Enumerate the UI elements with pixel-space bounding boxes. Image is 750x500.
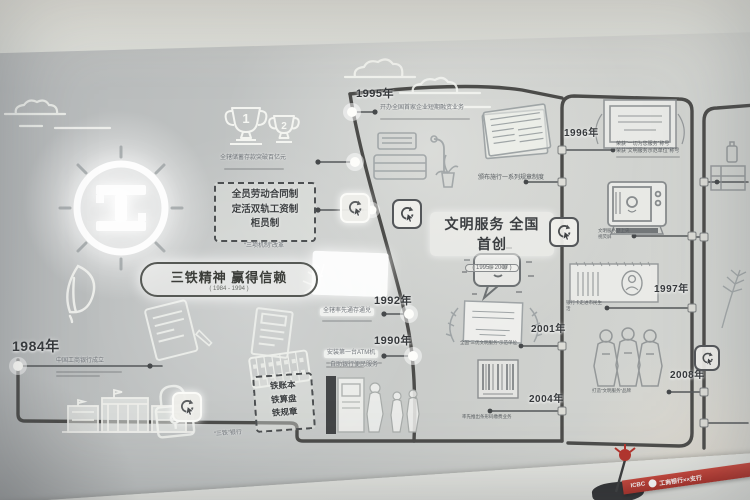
trophy-caption: 全辖储蓄存款突破百亿元 bbox=[220, 155, 314, 163]
atm-scene-icon bbox=[320, 370, 425, 440]
touch-button[interactable] bbox=[172, 392, 202, 422]
santie-line-3: 铁规章 bbox=[256, 404, 313, 421]
touch-button[interactable] bbox=[340, 193, 370, 223]
year-1997: 1997年 bbox=[654, 284, 689, 297]
event-2001: 全国“三优文明服务”示范单位 bbox=[460, 340, 518, 346]
mechanisms-box: 全员劳动合同制 定活双轨工资制 柜员制 bbox=[214, 182, 316, 242]
cloud-icon bbox=[0, 96, 175, 141]
mechanisms-line-3: 柜员制 bbox=[216, 217, 314, 232]
event-2008: 打造“文明服务”品牌 bbox=[592, 388, 668, 394]
event-1997: 银行卡走进市民生活 bbox=[566, 300, 606, 311]
year-2008: 2008年 bbox=[670, 370, 705, 383]
event-2004: 率先推出条形码缴费业务 bbox=[462, 414, 534, 420]
event-1992: 全辖率先通存通兑 bbox=[320, 308, 374, 316]
trophy-number-2: 2 bbox=[281, 121, 287, 132]
santie-title: 三铁精神 赢得信赖 ( 1984 - 1994 ) bbox=[140, 262, 318, 297]
santie-box: 铁账本 铁算盘 铁规章 bbox=[252, 372, 316, 433]
touch-button[interactable] bbox=[694, 345, 720, 371]
lit-certificate-frame bbox=[311, 251, 388, 298]
exhibition-wall-photo: 1 2 bbox=[0, 0, 750, 500]
ledger-book-icon bbox=[136, 296, 208, 362]
wheat-branch-icon bbox=[702, 262, 750, 332]
touch-click-icon bbox=[398, 205, 416, 223]
event-1996-b: 荣获“文明服务示范单位”称号 bbox=[616, 148, 692, 154]
banner-brand: ICBC bbox=[630, 481, 645, 489]
atm-caption: 自助银行便民服务 bbox=[330, 362, 400, 370]
event-1995: 开办全国首家企业短期融资业务 bbox=[380, 105, 510, 113]
year-1990: 1990年 bbox=[374, 335, 412, 349]
event-1990: 安装第一台ATM机 bbox=[324, 350, 378, 358]
event-1996: 荣获“一切为您服务”称号 bbox=[616, 141, 692, 147]
year-1984: 1984年 bbox=[12, 338, 60, 356]
mechanisms-line-2: 定活双轨工资制 bbox=[216, 203, 314, 218]
mechanisms-line-1: 全员劳动合同制 bbox=[216, 188, 314, 203]
mechanisms-caption: “三项机制”改革 bbox=[218, 243, 310, 251]
wenming-title: 文明服务 全国首创 ( 1995 - 2007 ) bbox=[430, 212, 554, 274]
regulation-caption: 颁布施行一系列规章制度 bbox=[478, 175, 556, 183]
touch-button[interactable] bbox=[549, 217, 579, 247]
wenming-title-dates: ( 1995 - 2007 ) bbox=[465, 264, 518, 272]
santie-title-text: 三铁精神 赢得信赖 bbox=[154, 267, 304, 286]
year-1992: 1992年 bbox=[374, 295, 412, 309]
year-2004: 2004年 bbox=[529, 394, 564, 407]
icbc-logo-icon bbox=[56, 143, 186, 273]
desk-plant-icon bbox=[370, 125, 460, 195]
banner-logo-icon bbox=[648, 479, 657, 488]
touch-click-icon bbox=[346, 199, 364, 217]
year-1996: 1996年 bbox=[564, 128, 599, 141]
santie-title-dates: ( 1984 - 1994 ) bbox=[154, 286, 304, 292]
event-1984: 中国工商银行成立 bbox=[56, 358, 156, 366]
trophy-icons: 1 2 bbox=[218, 102, 308, 154]
three-people-icon bbox=[592, 324, 664, 392]
barcode-icon bbox=[476, 358, 522, 406]
wenming-title-text: 文明服务 全国首创 bbox=[430, 212, 554, 256]
crate-icon bbox=[705, 136, 750, 206]
touch-click-icon bbox=[178, 398, 196, 416]
tv-caption: 文明服务登上央视荧屏 bbox=[598, 228, 632, 239]
touch-button[interactable] bbox=[392, 199, 422, 229]
year-1995: 1995年 bbox=[356, 88, 394, 102]
touch-click-icon bbox=[555, 223, 573, 241]
leaf-icon bbox=[48, 260, 108, 322]
trophy-number-1: 1 bbox=[242, 111, 249, 126]
touch-click-icon bbox=[700, 351, 715, 366]
year-2001: 2001年 bbox=[531, 324, 566, 337]
